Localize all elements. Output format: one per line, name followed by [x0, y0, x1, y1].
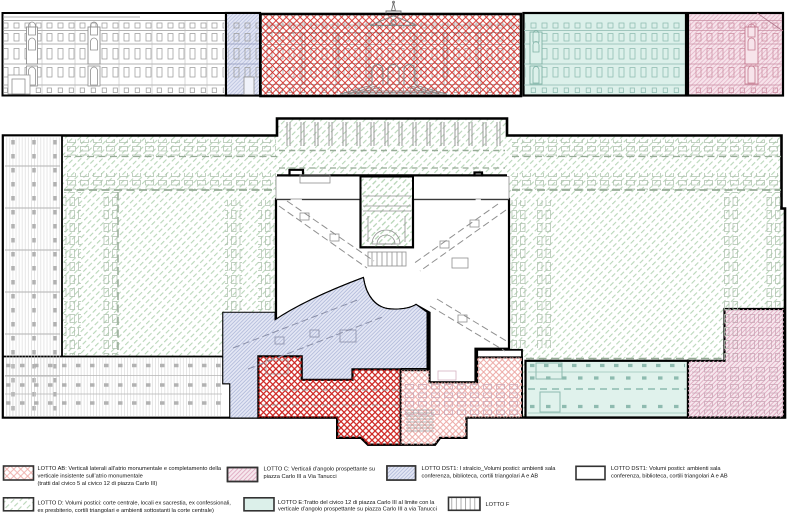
- svg-text:LOTTO E:Tratto del civico 12 d: LOTTO E:Tratto del civico 12 di piazza C…: [278, 500, 435, 506]
- svg-text:verticale insistente sull’atri: verticale insistente sull’atrio monument…: [38, 473, 143, 479]
- svg-text:LOTTO DST1: Volumi postici: am: LOTTO DST1: Volumi postici: ambienti sal…: [611, 466, 721, 472]
- svg-text:LOTTO DST1: I stralcio_Volumi: LOTTO DST1: I stralcio_Volumi postici: a…: [422, 466, 557, 472]
- svg-text:ex presbiterio, cortili triang: ex presbiterio, cortili triangolari e am…: [38, 508, 214, 513]
- svg-text:conferenza, biblioteca, cortil: conferenza, biblioteca, cortili triangol…: [611, 473, 728, 479]
- svg-text:conferenza, biblioteca, cortil: conferenza, biblioteca, cortili triangol…: [422, 473, 539, 479]
- svg-text:LOTTO F: LOTTO F: [486, 502, 510, 508]
- svg-text:LOTTO D: Volumi postici: corte: LOTTO D: Volumi postici: corte centrale,…: [38, 501, 232, 507]
- svg-text:verticale d’angolo prospettant: verticale d’angolo prospettante su piazz…: [278, 507, 437, 513]
- svg-text:piazza Carlo III a Via Tanucci: piazza Carlo III a Via Tanucci: [264, 474, 337, 480]
- svg-text:(tratti dal civico 5 al civico: (tratti dal civico 5 al civico 12 di pia…: [38, 481, 158, 487]
- svg-text:LOTTO C: Verticali d’angolo pr: LOTTO C: Verticali d’angolo prospettante…: [264, 467, 376, 473]
- svg-text:LOTTO AB: Verticali laterali a: LOTTO AB: Verticali laterali all’atrio m…: [38, 466, 222, 472]
